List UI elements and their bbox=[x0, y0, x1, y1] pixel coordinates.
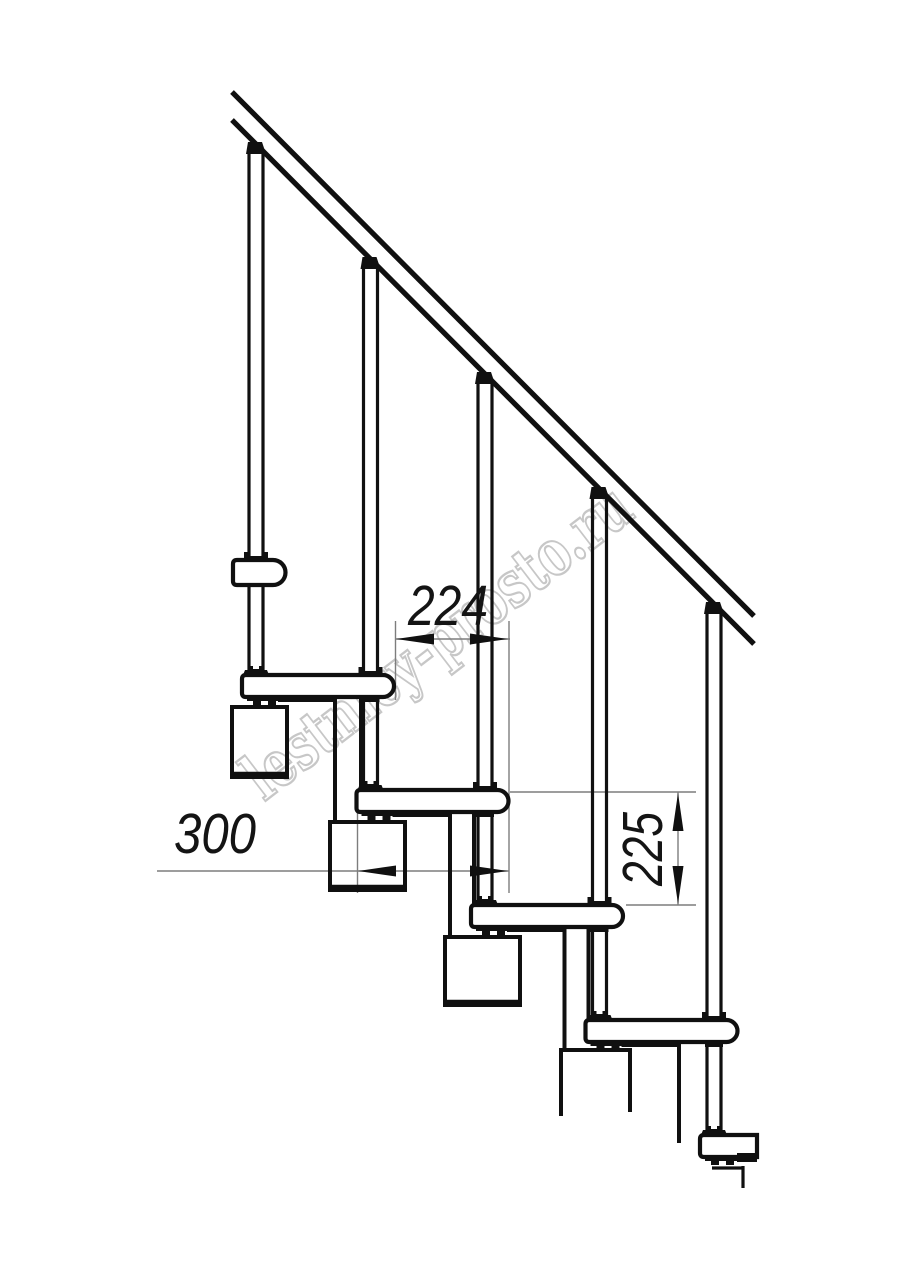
baluster4-collar bbox=[588, 897, 612, 905]
watermark-text: lestnicy-prosto.ru bbox=[228, 469, 647, 815]
landing-bracket bbox=[233, 560, 286, 585]
tread5-module-clamp bbox=[705, 1157, 737, 1165]
baluster2-rail-mount bbox=[361, 257, 381, 269]
module-box-2 bbox=[330, 822, 405, 890]
baluster5-foot-mount bbox=[701, 1126, 727, 1135]
tread-3 bbox=[471, 905, 623, 927]
baluster1-collar bbox=[244, 552, 268, 560]
tread1-clamp-bar bbox=[278, 695, 335, 702]
tread2-module-clamp bbox=[362, 812, 394, 820]
baluster-1 bbox=[249, 154, 263, 674]
baluster3-under-tread-plate bbox=[476, 812, 494, 817]
dim-label-step-rise: 225 bbox=[611, 812, 675, 887]
tread4-clamp-bar bbox=[622, 1040, 679, 1047]
watermark: lestnicy-prosto.ru bbox=[228, 469, 647, 815]
baluster3-collar bbox=[473, 782, 497, 790]
tread3-module-clamp bbox=[476, 927, 508, 935]
tread1-module-clamp bbox=[247, 697, 279, 705]
arrow-tread-depth-left bbox=[358, 866, 396, 877]
tread-4 bbox=[586, 1020, 738, 1042]
tread-2 bbox=[357, 790, 509, 812]
baluster-4 bbox=[593, 499, 607, 1019]
baluster4-under-tread-plate bbox=[591, 927, 609, 932]
baluster2-under-tread-plate bbox=[362, 697, 380, 702]
module-box-3 bbox=[445, 937, 520, 1005]
baluster1-rail-mount bbox=[246, 142, 266, 154]
tread5-clamp-bar bbox=[737, 1153, 757, 1162]
baluster-5 bbox=[707, 614, 721, 1134]
dim-label-step-run: 224 bbox=[407, 574, 488, 638]
baluster3-rail-mount bbox=[475, 372, 495, 384]
module-box-4 bbox=[561, 1050, 632, 1116]
tread2-clamp-bar bbox=[393, 810, 450, 817]
tread-1 bbox=[242, 675, 394, 697]
tread3-clamp-bar bbox=[507, 925, 564, 932]
staircase-drawing: lestnicy-prosto.ru bbox=[0, 0, 914, 1280]
baluster1-foot-mount bbox=[243, 666, 269, 675]
baluster5-under-tread-plate bbox=[705, 1042, 723, 1047]
dim-label-tread-depth: 300 bbox=[174, 802, 256, 866]
drawing-canvas: lestnicy-prosto.ru bbox=[0, 0, 914, 1280]
baluster5-rail-mount bbox=[704, 602, 724, 614]
arrow-tread-depth-right bbox=[470, 866, 508, 877]
baluster5-collar bbox=[702, 1012, 726, 1020]
